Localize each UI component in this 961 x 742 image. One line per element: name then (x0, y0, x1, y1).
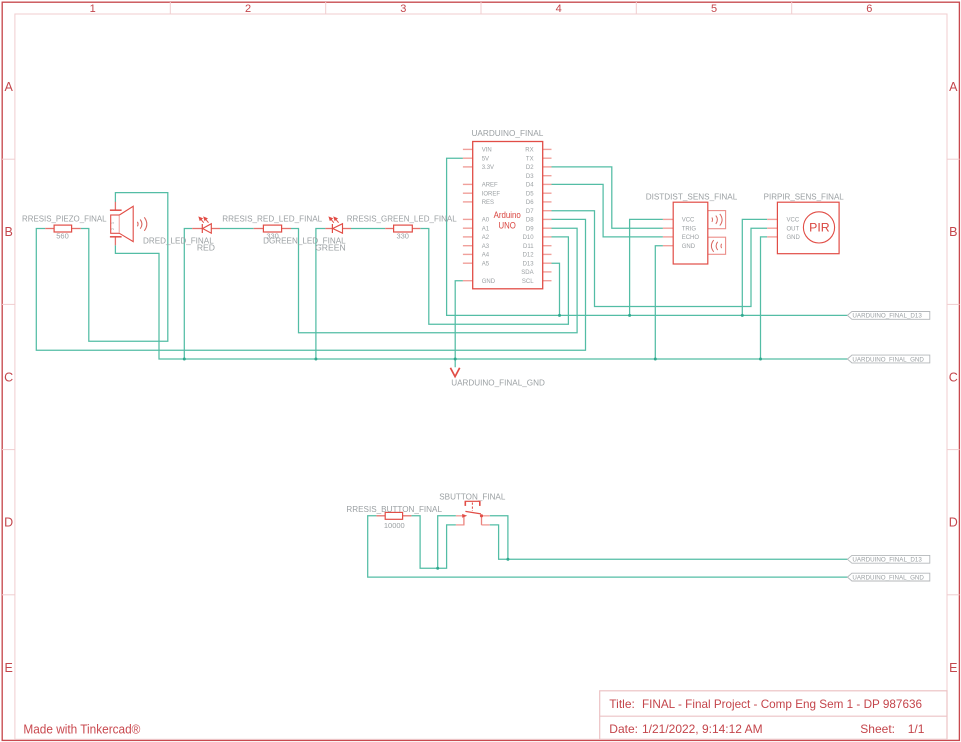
svg-text:D8: D8 (526, 218, 534, 224)
svg-text:UARDUINO_FINAL_GND: UARDUINO_FINAL_GND (451, 378, 545, 388)
svg-text:3: 3 (400, 3, 406, 15)
svg-text:Title:: Title: (609, 697, 635, 711)
svg-text:GREEN: GREEN (315, 243, 346, 253)
svg-text:D: D (4, 516, 13, 530)
svg-text:RRESIS_RED_LED_FINAL: RRESIS_RED_LED_FINAL (222, 214, 322, 224)
svg-text:GND: GND (482, 279, 496, 285)
svg-text:RED: RED (197, 243, 215, 253)
svg-text:A5: A5 (482, 261, 490, 267)
svg-text:PIRPIR_SENS_FINAL: PIRPIR_SENS_FINAL (764, 191, 844, 201)
svg-text:UARDUINO_FINAL_GND: UARDUINO_FINAL_GND (852, 357, 924, 363)
svg-text:UNO: UNO (499, 220, 516, 230)
svg-text:D: D (949, 516, 958, 530)
svg-text:DISTDIST_SENS_FINAL: DISTDIST_SENS_FINAL (646, 191, 738, 201)
svg-text:D5: D5 (526, 191, 534, 197)
svg-text:B: B (949, 225, 957, 239)
svg-text:GND: GND (787, 235, 801, 241)
svg-text:2: 2 (245, 3, 251, 15)
svg-text:OUT: OUT (787, 226, 800, 232)
svg-text:FINAL - Final Project - Comp E: FINAL - Final Project - Comp Eng Sem 1 -… (642, 697, 922, 711)
svg-text:5V: 5V (482, 156, 489, 162)
svg-text:SDA: SDA (521, 270, 533, 276)
svg-text:3.3V: 3.3V (482, 165, 494, 171)
svg-text:UARDUINO_FINAL: UARDUINO_FINAL (471, 128, 543, 138)
svg-text:4: 4 (556, 3, 562, 15)
svg-text:1/1: 1/1 (908, 722, 925, 736)
svg-text:GND: GND (682, 244, 696, 250)
svg-text:C: C (949, 370, 958, 384)
svg-text:D2: D2 (526, 165, 534, 171)
svg-text:1/21/2022, 9:14:12 AM: 1/21/2022, 9:14:12 AM (642, 722, 763, 736)
svg-text:6: 6 (866, 3, 872, 15)
svg-text:VIN: VIN (482, 148, 492, 154)
svg-text:E: E (949, 661, 957, 675)
svg-text:RX: RX (525, 148, 533, 154)
svg-text:AREF: AREF (482, 183, 498, 189)
svg-text:A: A (5, 80, 14, 94)
svg-text:A0: A0 (482, 218, 490, 224)
svg-text:VCC: VCC (787, 218, 800, 224)
svg-text:Made with Tinkercad®: Made with Tinkercad® (23, 723, 141, 737)
svg-text:Arduino: Arduino (494, 210, 521, 220)
svg-text:RRESIS_BUTTON_FINAL: RRESIS_BUTTON_FINAL (346, 504, 442, 514)
svg-text:UARDUINO_FINAL_D13: UARDUINO_FINAL_D13 (852, 558, 922, 564)
svg-text:C: C (4, 370, 13, 384)
svg-text:VCC: VCC (682, 218, 695, 224)
svg-text:1: 1 (90, 3, 96, 15)
svg-text:TX: TX (526, 156, 534, 162)
svg-text:SBUTTON_FINAL: SBUTTON_FINAL (439, 491, 505, 501)
svg-text:SCL: SCL (522, 279, 534, 285)
svg-text:RRESIS_PIEZO_FINAL: RRESIS_PIEZO_FINAL (22, 214, 107, 224)
svg-text:Sheet:: Sheet: (860, 722, 895, 736)
svg-text:D7: D7 (526, 209, 534, 215)
svg-text:UARDUINO_FINAL_D13: UARDUINO_FINAL_D13 (852, 314, 922, 320)
svg-text:D3: D3 (526, 174, 534, 180)
svg-text:A1: A1 (482, 226, 490, 232)
svg-text:560: 560 (56, 232, 69, 241)
svg-text:RES: RES (482, 200, 494, 206)
svg-text:10000: 10000 (384, 521, 405, 530)
svg-text:5: 5 (711, 3, 717, 15)
svg-text:D9: D9 (526, 226, 534, 232)
svg-text:UARDUINO_FINAL_GND: UARDUINO_FINAL_GND (852, 575, 924, 581)
svg-text:D6: D6 (526, 200, 534, 206)
svg-text:RRESIS_GREEN_LED_FINAL: RRESIS_GREEN_LED_FINAL (347, 214, 457, 224)
svg-text:B: B (5, 225, 13, 239)
svg-text:330: 330 (396, 232, 409, 241)
svg-text:D13: D13 (523, 261, 535, 267)
svg-text:PIR: PIR (809, 221, 830, 235)
svg-text:D10: D10 (523, 235, 535, 241)
svg-text:ECHO: ECHO (682, 235, 700, 241)
svg-text:A4: A4 (482, 253, 490, 259)
svg-text:D11: D11 (523, 244, 534, 250)
svg-text:TRIG: TRIG (682, 226, 697, 232)
svg-text:A2: A2 (482, 235, 490, 241)
svg-text:Date:: Date: (609, 722, 638, 736)
svg-text:D4: D4 (526, 183, 534, 189)
svg-text:D12: D12 (523, 253, 535, 259)
svg-text:IOREF: IOREF (482, 191, 501, 197)
svg-text:A3: A3 (482, 244, 490, 250)
svg-text:E: E (5, 661, 13, 675)
svg-text:A: A (949, 80, 958, 94)
